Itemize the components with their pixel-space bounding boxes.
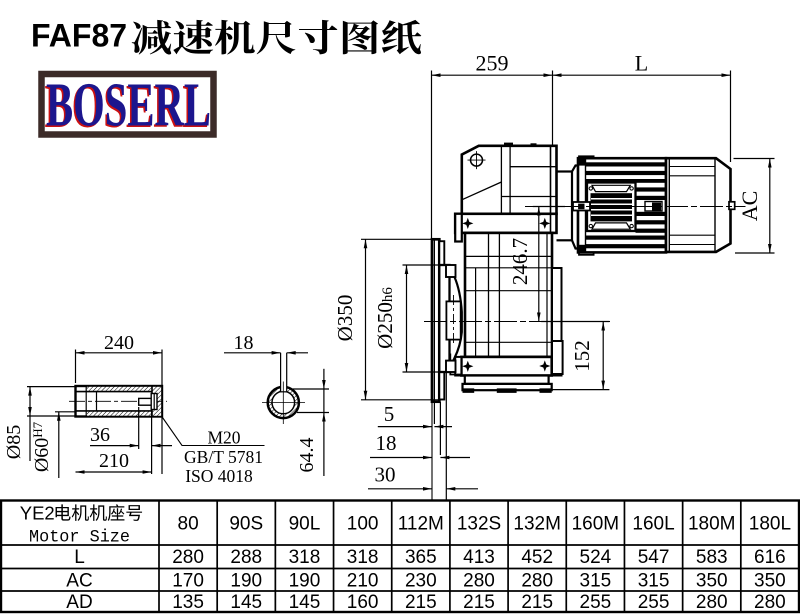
svg-text:Motor Size: Motor Size — [29, 528, 130, 548]
svg-text:616: 616 — [754, 547, 786, 568]
svg-text:318: 318 — [289, 547, 321, 568]
svg-text:230: 230 — [405, 570, 437, 591]
svg-text:Ø350: Ø350 — [333, 295, 357, 342]
svg-text:160M: 160M — [572, 514, 620, 535]
svg-text:YE2: YE2 — [20, 503, 55, 524]
svg-text:132S: 132S — [457, 514, 501, 535]
svg-text:180M: 180M — [688, 514, 736, 535]
svg-text:259: 259 — [476, 51, 509, 76]
svg-text:36: 36 — [90, 424, 110, 446]
svg-text:365: 365 — [405, 547, 437, 568]
svg-text:280: 280 — [172, 547, 204, 568]
svg-text:180L: 180L — [749, 514, 791, 535]
svg-text:145: 145 — [230, 592, 262, 613]
svg-text:AC: AC — [66, 570, 92, 591]
svg-text:ISO 4018: ISO 4018 — [185, 466, 253, 486]
svg-text:318: 318 — [347, 547, 379, 568]
svg-text:AD: AD — [66, 592, 92, 613]
svg-text:215: 215 — [521, 592, 553, 613]
svg-text:215: 215 — [405, 592, 437, 613]
svg-text:160: 160 — [347, 592, 379, 613]
svg-text:413: 413 — [463, 547, 495, 568]
svg-text:135: 135 — [172, 592, 204, 613]
svg-text:145: 145 — [289, 592, 321, 613]
svg-text:80: 80 — [178, 514, 199, 535]
svg-text:255: 255 — [638, 592, 670, 613]
svg-text:280: 280 — [696, 592, 728, 613]
svg-text:Ø85: Ø85 — [3, 425, 25, 459]
svg-text:64.4: 64.4 — [296, 438, 318, 473]
svg-text:152: 152 — [570, 340, 594, 372]
svg-text:215: 215 — [463, 592, 495, 613]
svg-text:M20: M20 — [207, 428, 240, 448]
svg-text:160L: 160L — [632, 514, 674, 535]
svg-text:170: 170 — [172, 570, 204, 591]
svg-text:FAF87: FAF87 — [31, 18, 127, 54]
svg-text:288: 288 — [230, 547, 262, 568]
svg-text:280: 280 — [754, 592, 786, 613]
svg-text:90S: 90S — [229, 514, 263, 535]
svg-text:547: 547 — [638, 547, 670, 568]
svg-text:30: 30 — [375, 463, 396, 487]
svg-text:210: 210 — [347, 570, 379, 591]
svg-text:18: 18 — [376, 431, 397, 455]
svg-text:L: L — [74, 547, 85, 568]
svg-text:452: 452 — [521, 547, 553, 568]
svg-text:210: 210 — [99, 450, 129, 472]
svg-text:112M: 112M — [398, 514, 444, 535]
svg-text:GB/T 5781: GB/T 5781 — [184, 447, 263, 467]
svg-text:AC: AC — [737, 191, 762, 222]
svg-text:BOSERL: BOSERL — [46, 72, 211, 140]
svg-text:L: L — [635, 51, 648, 76]
svg-text:280: 280 — [521, 570, 553, 591]
svg-text:583: 583 — [696, 547, 728, 568]
svg-text:240: 240 — [104, 332, 134, 354]
svg-text:18: 18 — [234, 332, 254, 354]
svg-text:255: 255 — [580, 592, 612, 613]
svg-text:90L: 90L — [289, 514, 321, 535]
svg-text:190: 190 — [289, 570, 321, 591]
svg-text:132M: 132M — [513, 514, 561, 535]
svg-text:246.7: 246.7 — [508, 238, 532, 285]
svg-text:524: 524 — [580, 547, 612, 568]
svg-text:350: 350 — [754, 570, 786, 591]
svg-text:100: 100 — [347, 514, 379, 535]
svg-text:190: 190 — [230, 570, 262, 591]
svg-text:315: 315 — [580, 570, 612, 591]
svg-text:315: 315 — [638, 570, 670, 591]
svg-text:5: 5 — [384, 402, 395, 426]
svg-text:280: 280 — [463, 570, 495, 591]
svg-text:350: 350 — [696, 570, 728, 591]
